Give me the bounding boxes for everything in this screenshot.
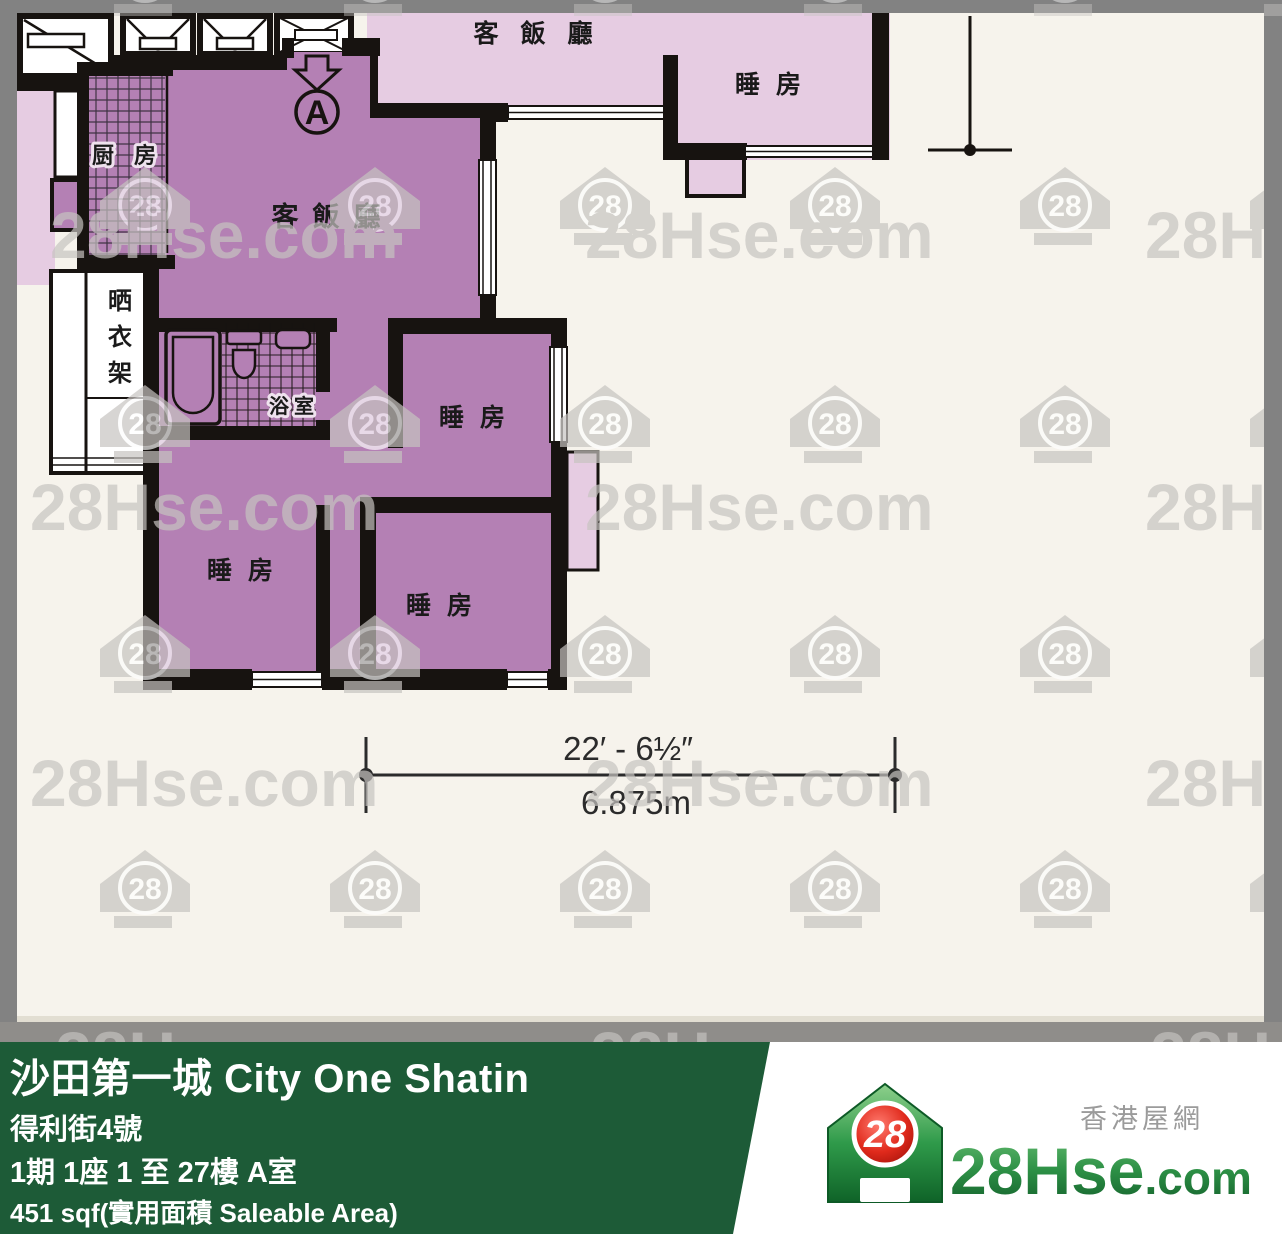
banner-green-panel: 沙田第一城 City One Shatin 得利街4號 1期 1座 1 至 27… <box>0 1042 800 1234</box>
bedroom3-label: 睡房 <box>406 591 488 620</box>
watermark-text <box>1145 746 1282 820</box>
logo-brand-suffix: .com <box>1145 1152 1252 1204</box>
floor-plan: 28 28Hse.com 晒衣 <box>0 0 1282 1042</box>
28hse-logo: 28 28Hse.com 香港屋網 <box>812 1042 1282 1234</box>
estate-title: 沙田第一城 City One Shatin <box>10 1046 529 1104</box>
estate-address: 得利街4號 <box>10 1106 142 1148</box>
scan-shadow <box>0 1016 1282 1022</box>
watermark-text <box>50 198 399 272</box>
neighbor-bedroom-label: 睡房 <box>735 70 817 99</box>
kitchen-label: 厨房 <box>92 143 176 168</box>
watermark-text <box>30 746 379 820</box>
toilet-bowl <box>233 350 255 378</box>
watermark-text <box>585 198 934 272</box>
estate-area: 451 sqf(實用面積 Saleable Area) <box>10 1193 398 1230</box>
watermark-text <box>1145 198 1282 272</box>
washbasin <box>276 330 310 348</box>
bedroom2-label: 睡房 <box>207 556 289 585</box>
watermark-text <box>1145 470 1282 544</box>
logo-badge-number: 28 <box>863 1114 907 1156</box>
logo-tagline: 香港屋網 <box>1080 1104 1204 1134</box>
bedroom1-label: 睡房 <box>439 403 521 432</box>
estate-phase-info: 1期 1座 1 至 27樓 A室 <box>10 1149 297 1191</box>
floorplan-page: { "plan": { "unit": { "marker": "A", "li… <box>0 0 1282 1234</box>
neighbor-living-label: 客飯廳 <box>473 19 614 48</box>
neighbor-bedroom-window <box>745 146 875 157</box>
logo-brand-main: 28Hse <box>950 1134 1145 1208</box>
unit-marker-letter: A <box>305 94 330 132</box>
info-banner: 沙田第一城 City One Shatin 得利街4號 1期 1座 1 至 27… <box>0 1042 1282 1234</box>
logo-brand-text: 28Hse.com <box>950 1134 1252 1208</box>
logo-house-icon: 28 <box>828 1084 942 1202</box>
watermark-text <box>30 470 379 544</box>
neighbor-window-strip <box>508 106 668 119</box>
bathroom-label: 浴室 <box>269 394 319 418</box>
watermark-text <box>585 470 934 544</box>
toilet-tank <box>227 331 261 344</box>
neighbor-balcony-box <box>687 158 744 196</box>
drying-rack-label: 晒衣架 <box>104 288 132 396</box>
watermark-text <box>585 746 934 820</box>
